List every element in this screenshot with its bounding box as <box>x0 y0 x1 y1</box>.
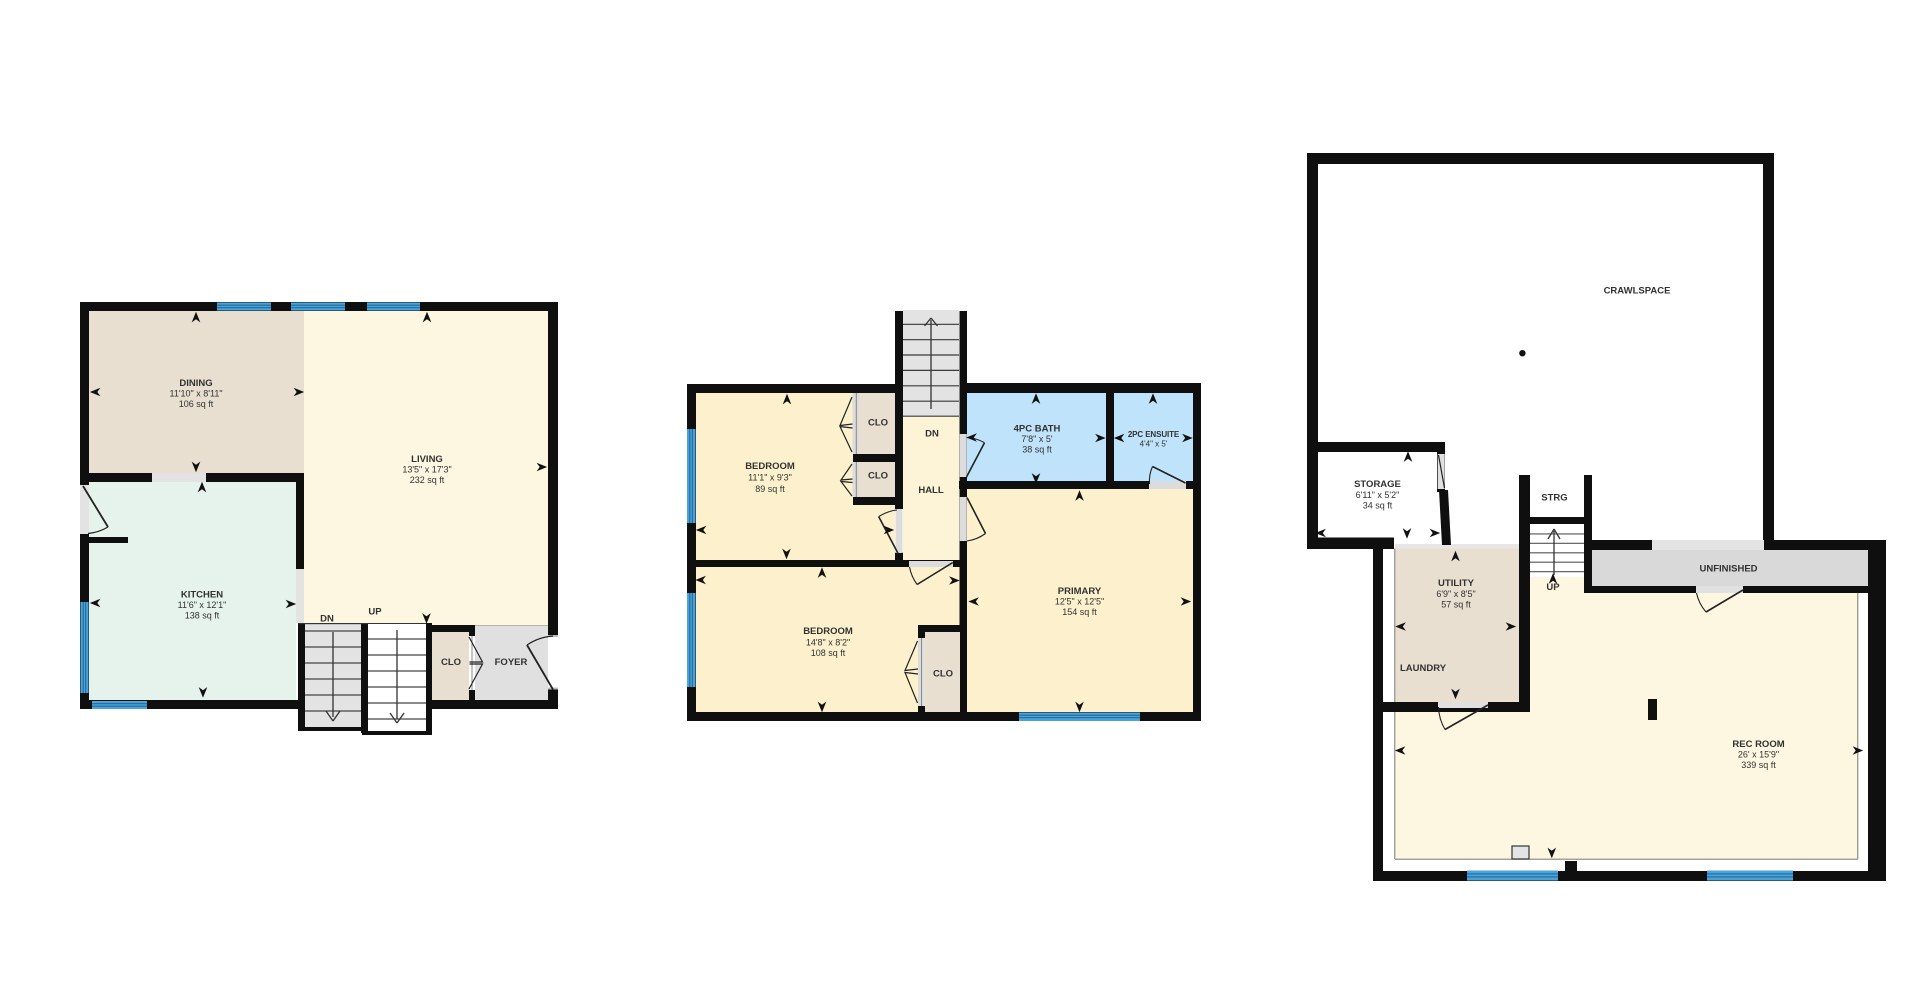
svg-text:154 sq ft: 154 sq ft <box>1062 607 1097 617</box>
svg-text:11'1" x 9'3": 11'1" x 9'3" <box>748 473 792 483</box>
svg-text:CLO: CLO <box>868 418 888 429</box>
svg-text:LAUNDRY: LAUNDRY <box>1400 663 1447 674</box>
svg-text:DN: DN <box>925 429 939 440</box>
svg-text:UTILITY: UTILITY <box>1438 578 1475 589</box>
svg-text:CRAWLSPACE: CRAWLSPACE <box>1604 286 1671 297</box>
svg-text:UNFINISHED: UNFINISHED <box>1699 564 1757 575</box>
svg-text:34 sq ft: 34 sq ft <box>1363 501 1393 511</box>
svg-text:14'8" x 8'2": 14'8" x 8'2" <box>806 638 850 648</box>
svg-text:57 sq ft: 57 sq ft <box>1441 600 1471 610</box>
svg-text:DN: DN <box>320 614 334 625</box>
svg-text:STRG: STRG <box>1541 493 1567 504</box>
svg-text:DINING: DINING <box>179 378 212 389</box>
svg-text:38 sq ft: 38 sq ft <box>1022 445 1052 455</box>
svg-text:REC ROOM: REC ROOM <box>1732 739 1784 750</box>
svg-text:6'9" x 8'5": 6'9" x 8'5" <box>1436 589 1475 599</box>
svg-text:106 sq ft: 106 sq ft <box>179 399 214 409</box>
svg-text:STORAGE: STORAGE <box>1354 479 1401 490</box>
svg-text:CLO: CLO <box>868 471 888 482</box>
svg-text:138 sq ft: 138 sq ft <box>185 611 220 621</box>
svg-text:12'5" x 12'5": 12'5" x 12'5" <box>1055 597 1104 607</box>
svg-text:13'5" x 17'3": 13'5" x 17'3" <box>402 465 451 475</box>
svg-text:4PC BATH: 4PC BATH <box>1014 424 1061 435</box>
svg-text:CLO: CLO <box>441 657 461 668</box>
svg-text:108 sq ft: 108 sq ft <box>811 648 846 658</box>
svg-text:4'4" x 5': 4'4" x 5' <box>1140 440 1168 449</box>
svg-text:BEDROOM: BEDROOM <box>745 461 795 472</box>
svg-text:CLO: CLO <box>933 669 953 680</box>
svg-text:LIVING: LIVING <box>411 454 443 465</box>
svg-text:UP: UP <box>368 607 382 618</box>
svg-text:2PC ENSUITE: 2PC ENSUITE <box>1128 430 1180 439</box>
svg-text:UP: UP <box>1546 582 1560 593</box>
svg-text:11'6" x 12'1": 11'6" x 12'1" <box>178 600 227 610</box>
svg-text:89 sq ft: 89 sq ft <box>755 484 785 494</box>
svg-text:PRIMARY: PRIMARY <box>1058 586 1102 597</box>
svg-text:11'10" x 8'11": 11'10" x 8'11" <box>169 389 222 399</box>
svg-text:7'8" x 5': 7'8" x 5' <box>1021 434 1052 444</box>
svg-text:6'11" x 5'2": 6'11" x 5'2" <box>1356 490 1400 500</box>
svg-text:339 sq ft: 339 sq ft <box>1741 760 1776 770</box>
svg-text:26' x 15'9": 26' x 15'9" <box>1738 750 1779 760</box>
svg-text:232 sq ft: 232 sq ft <box>410 475 445 485</box>
svg-text:FOYER: FOYER <box>495 657 528 668</box>
svg-text:HALL: HALL <box>918 485 944 496</box>
svg-text:KITCHEN: KITCHEN <box>181 590 223 601</box>
svg-text:BEDROOM: BEDROOM <box>803 626 853 637</box>
